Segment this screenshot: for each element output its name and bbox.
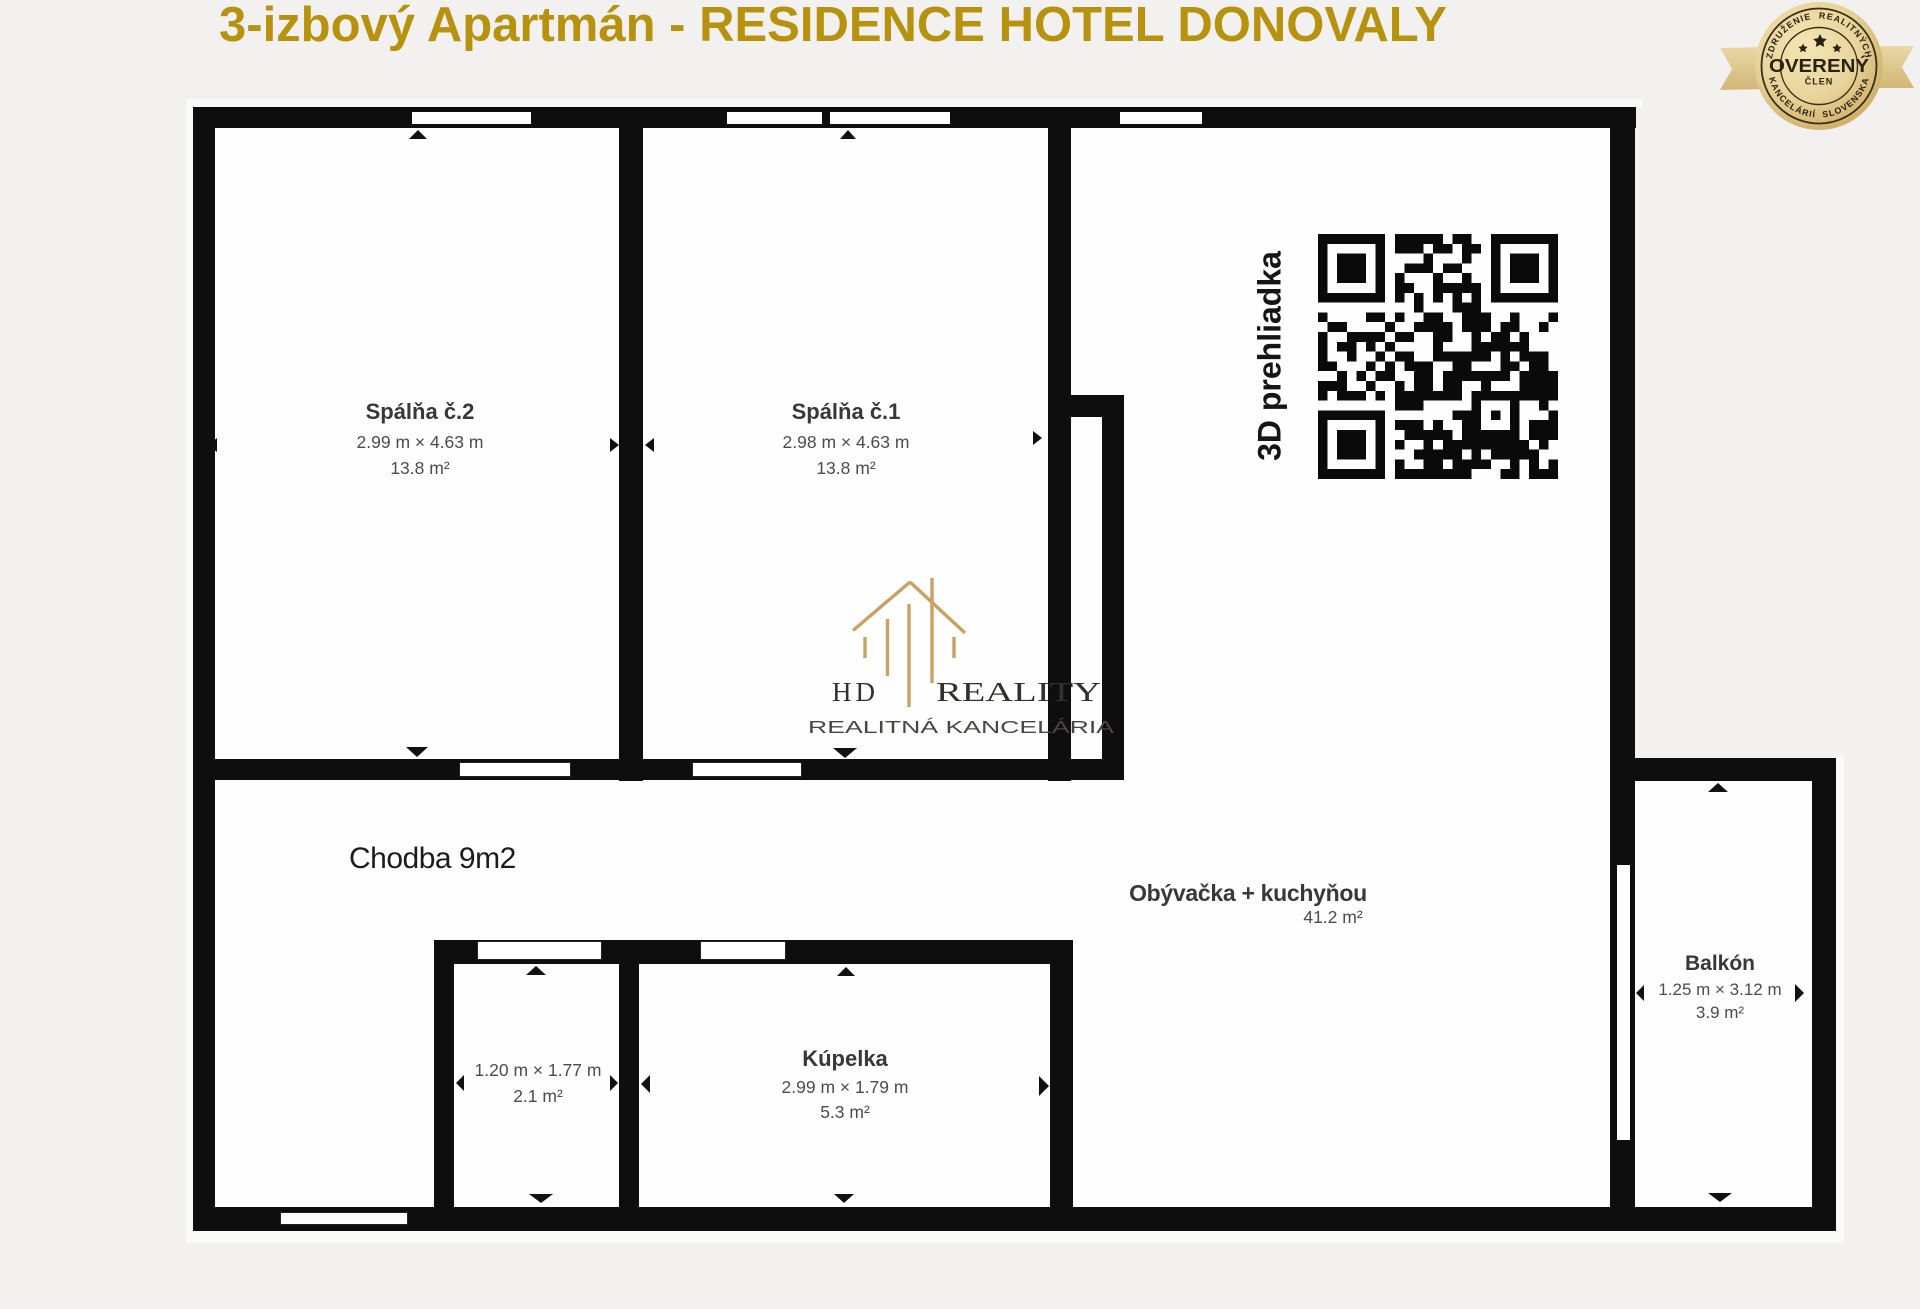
svg-text:OVERENÝ: OVERENÝ	[1769, 55, 1869, 76]
svg-text:REALITNÁ KANCELÁRIA: REALITNÁ KANCELÁRIA	[808, 717, 1114, 737]
svg-text:ČLEN: ČLEN	[1805, 76, 1834, 87]
svg-text:REALITY: REALITY	[936, 677, 1101, 707]
svg-text:HD: HD	[832, 677, 879, 707]
